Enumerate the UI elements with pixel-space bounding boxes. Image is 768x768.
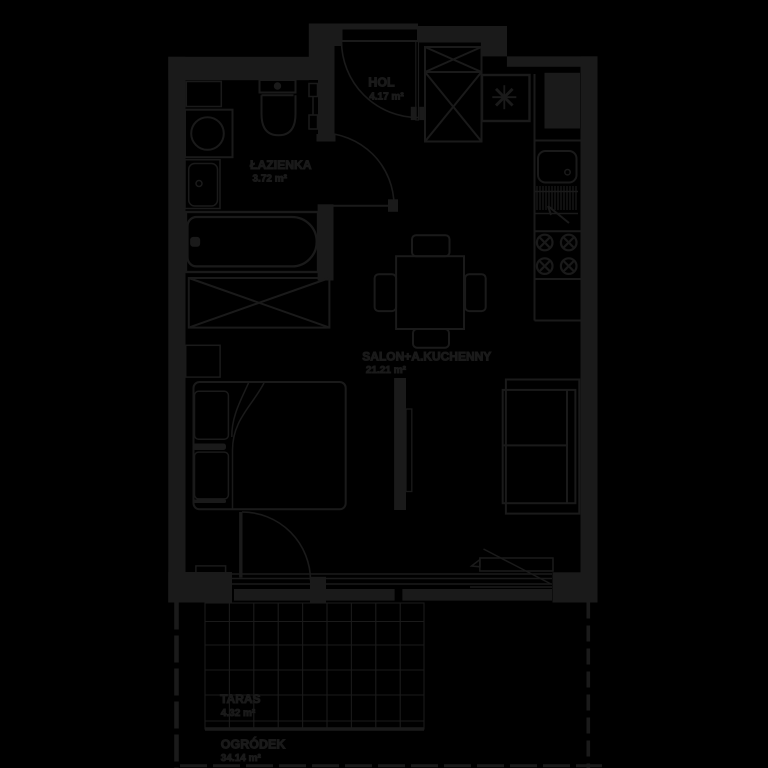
svg-text:3.72 m²: 3.72 m² [253, 174, 288, 185]
svg-text:4.17 m²: 4.17 m² [369, 92, 404, 103]
svg-text:TARAS: TARAS [220, 692, 260, 706]
svg-text:HOL: HOL [368, 76, 395, 90]
svg-text:21.21 m²: 21.21 m² [366, 365, 407, 376]
svg-text:SALON+A.KUCHENNY: SALON+A.KUCHENNY [362, 350, 491, 364]
svg-text:4.32 m²: 4.32 m² [221, 708, 256, 719]
svg-text:ŁAZIENKA: ŁAZIENKA [250, 158, 312, 172]
svg-text:34.14 m²: 34.14 m² [221, 753, 262, 764]
svg-text:OGRÓDEK: OGRÓDEK [221, 737, 286, 752]
